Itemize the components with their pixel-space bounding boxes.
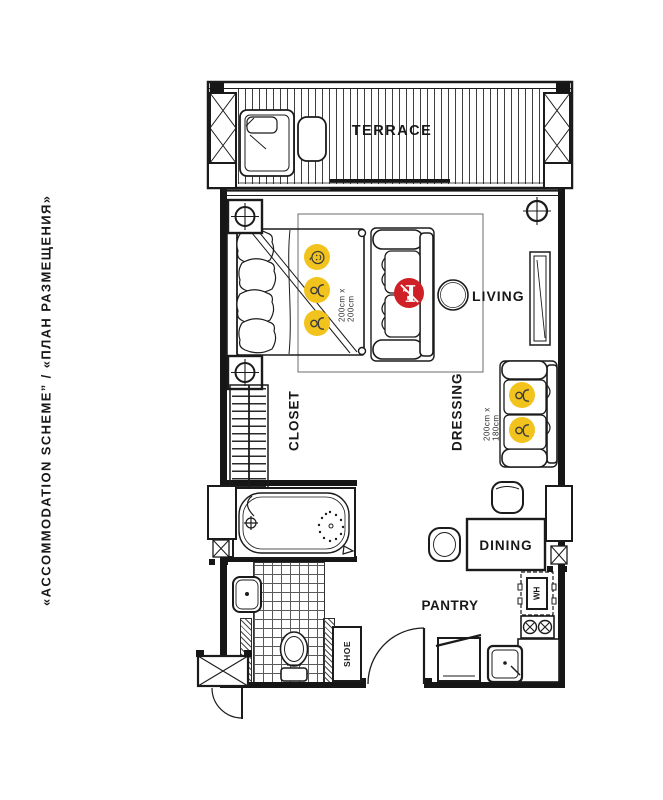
bathtub: [233, 488, 355, 558]
terrace-side-table: [298, 117, 326, 161]
kitchen-sink: [488, 646, 522, 682]
dressing-sofa-size-label: 200cm x 180cm: [484, 381, 499, 441]
adult-occupant-icon: [304, 310, 330, 336]
entry-door: [368, 628, 424, 684]
dining-chair-left: [429, 528, 460, 561]
floorplan-lineart: [0, 0, 663, 800]
coffee-table: [438, 280, 468, 310]
washbasin: [233, 577, 261, 612]
dressing-label: DRESSING: [447, 366, 467, 458]
refrigerator: [436, 635, 481, 681]
dining-chair-top: [492, 482, 523, 513]
pantry-label: PANTRY: [418, 596, 482, 614]
adult-occupant-icon: [304, 277, 330, 303]
toilet: [281, 632, 308, 681]
terrace-lounge-chair: [240, 110, 294, 176]
right-column: [546, 486, 572, 572]
dining-label: DINING: [467, 536, 545, 554]
baby-occupant-icon: [304, 244, 330, 270]
closet-label: CLOSET: [284, 389, 304, 453]
adult-occupant-icon: [509, 417, 535, 443]
service-ledge: [196, 650, 252, 719]
terrace-label: TERRACE: [348, 122, 436, 140]
left-shaft: [208, 486, 236, 565]
adult-occupant-icon: [509, 382, 535, 408]
tv-console: [530, 252, 550, 345]
kitchen-counter: [518, 639, 559, 682]
shoe-cabinet-label: SHOE: [338, 632, 356, 676]
no-extra-bed-icon: z: [394, 278, 424, 308]
closet-hanger-rack: [230, 385, 268, 488]
plan-title: «ACCOMMODATION SCHEME” / «ПЛАН РАЗМЕЩЕНИ…: [34, 180, 58, 620]
water-heater-label: WH: [529, 580, 545, 607]
bed-size-label: 200cm x 200cm: [339, 262, 354, 322]
living-label: LIVING: [472, 288, 525, 304]
stove: [521, 616, 554, 638]
dressing-sofa-occupancy-icons: [509, 382, 535, 452]
bed-occupancy-icons: [304, 244, 330, 343]
bed-pillows: [237, 230, 276, 353]
